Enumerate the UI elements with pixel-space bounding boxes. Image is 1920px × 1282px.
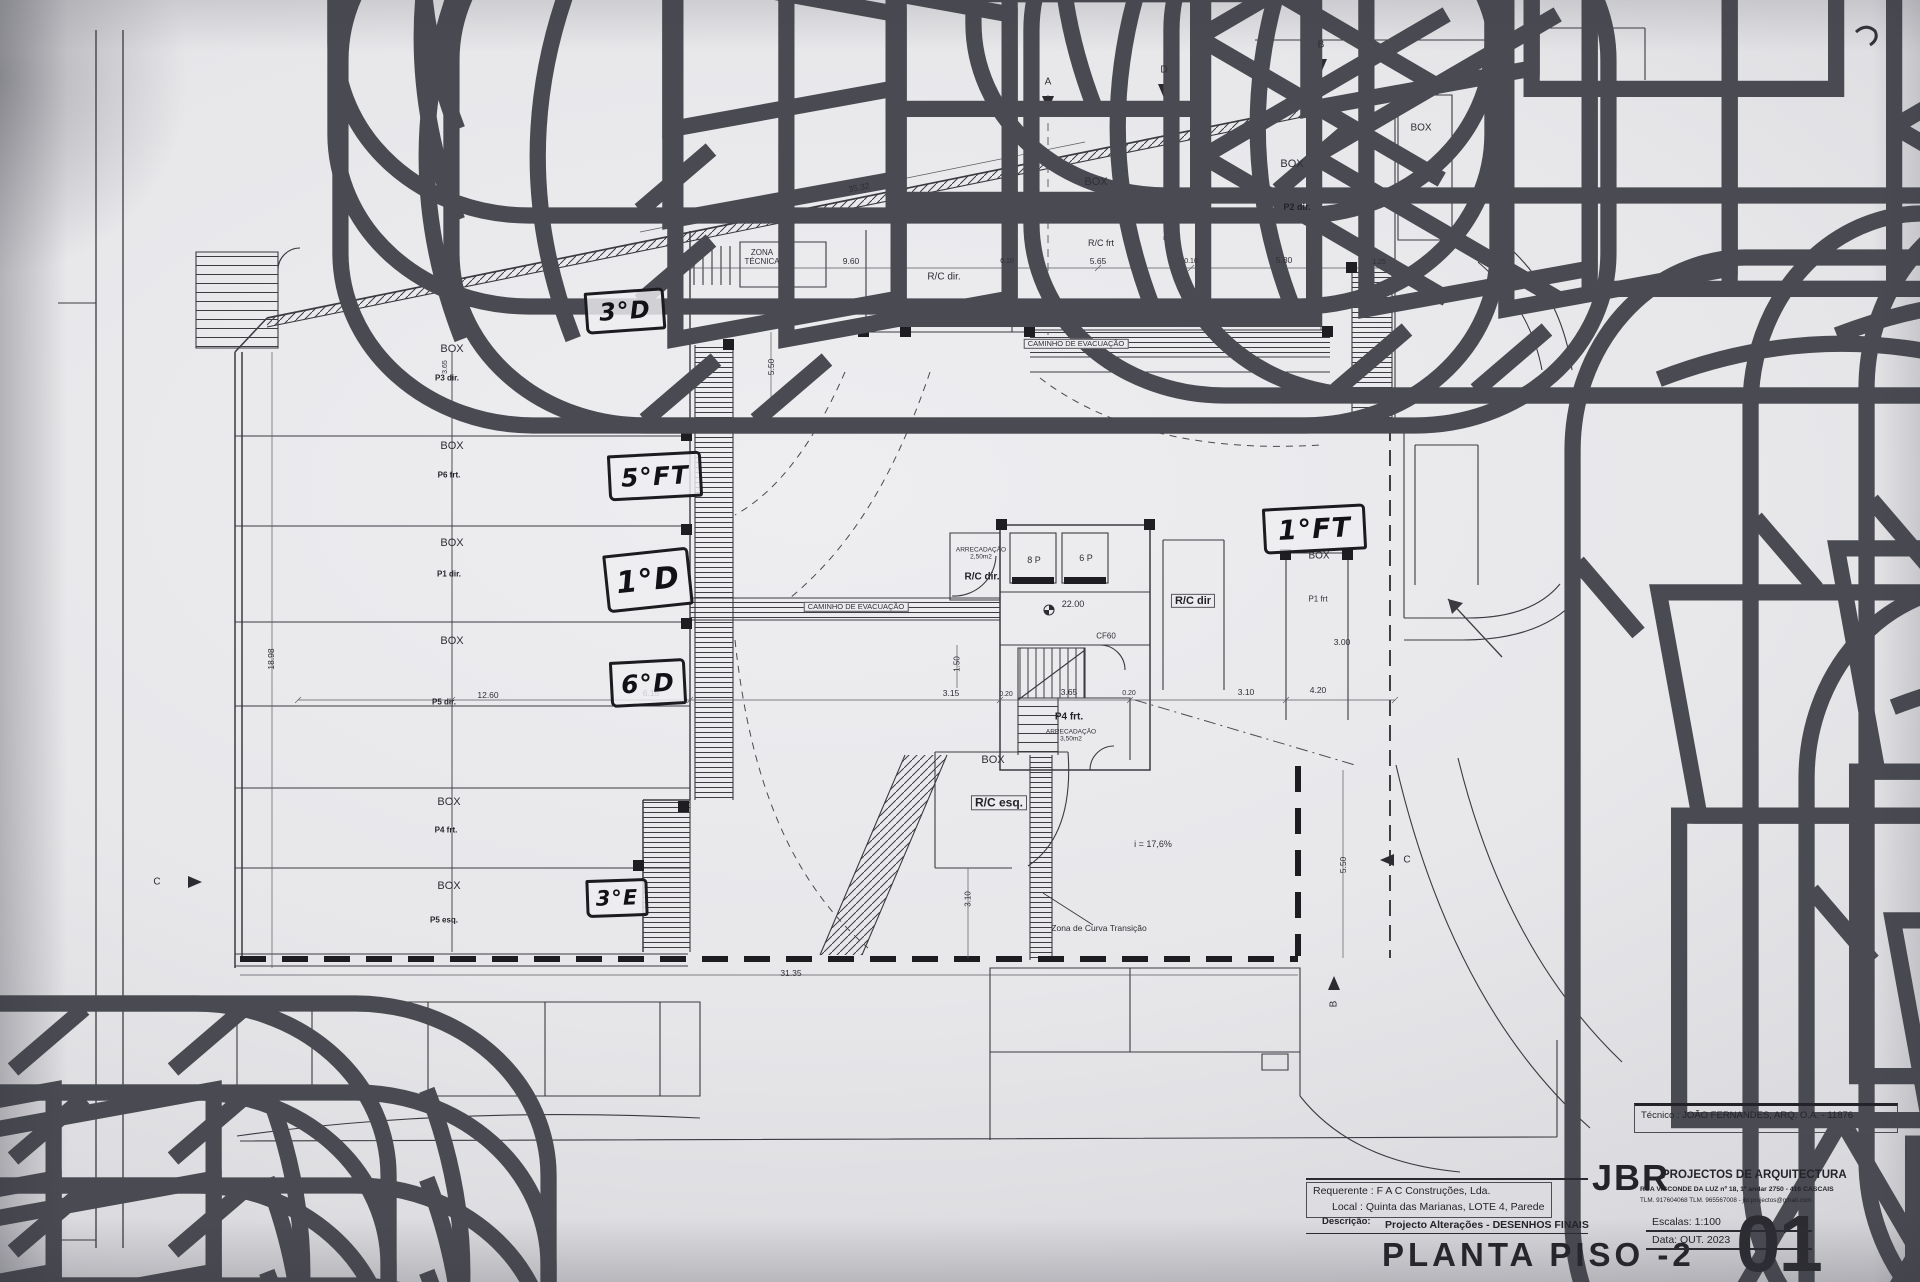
dim-label: 35.32 xyxy=(848,181,871,194)
escala-row: Escalas: 1:100 xyxy=(1652,1216,1721,1228)
level-label: 22.00 xyxy=(1062,599,1085,609)
lift-label: 6 P xyxy=(1079,553,1093,563)
rc-dir-top-label: R/C dir. xyxy=(927,271,960,282)
dim-label: 4.20 xyxy=(1310,686,1327,696)
dim-label: 3.10 xyxy=(1238,688,1255,698)
section-marker: D xyxy=(1160,64,1167,75)
dim-label: 1.25 xyxy=(1372,259,1386,267)
rc-dir-annex-label: R/C dir. xyxy=(964,571,999,582)
arrecadacao-label: ARRECADAÇÃO 2,50m2 xyxy=(956,547,1006,562)
stall-label: P4 frt. xyxy=(435,827,458,836)
dim-label: 3.65 xyxy=(442,360,450,374)
dim-label: 18.98 xyxy=(267,648,277,669)
arrecadacao-label: ARRECADAÇÃO 3,50m2 xyxy=(1046,729,1096,744)
dim-label: 5.50 xyxy=(1339,857,1349,874)
firm-name: PROJECTOS DE ARQUITECTURA xyxy=(1662,1169,1847,1181)
stall-label: P6 frt. xyxy=(438,472,461,481)
drawing-title: PLANTA PISO -2 xyxy=(1382,1236,1695,1274)
descricao-label: Descrição: xyxy=(1322,1216,1371,1227)
sheet-number: 01 xyxy=(1736,1198,1821,1282)
scanned-floor-plan-photo: ZONA TÉCNICACAMINHO DE EVACUAÇÃOCAMINHO … xyxy=(0,0,1920,1282)
stall-label: P3 dir. xyxy=(435,375,459,384)
local-row: Local : Quinta das Marianas, LOTE 4, Par… xyxy=(1332,1201,1544,1213)
box-label: BOX xyxy=(440,440,463,452)
stall-label: P5 esq. xyxy=(430,917,458,926)
descricao-value: Projecto Alterações - DESENHOS FINAIS xyxy=(1385,1219,1589,1231)
door-label: CF60 xyxy=(1096,633,1116,642)
section-marker: C xyxy=(153,876,160,887)
zona-tecnica-label: ZONA TÉCNICA xyxy=(744,249,779,267)
dim-label: 9.60 xyxy=(843,257,860,267)
lift-label: 8 P xyxy=(1027,555,1041,565)
dim-label: 0.20 xyxy=(999,691,1013,699)
dim-label: 0.10 xyxy=(1184,258,1198,266)
dim-label: 1.50 xyxy=(954,656,963,672)
stall-label: P4 frt. xyxy=(1055,711,1083,722)
section-marker: B xyxy=(1318,39,1325,50)
box-label: BOX xyxy=(440,537,463,549)
divider xyxy=(1306,1178,1588,1180)
box-label: BOX xyxy=(440,635,463,647)
divider xyxy=(1306,1233,1588,1234)
dim-label: 31.35 xyxy=(780,969,801,979)
box-label: BOX xyxy=(1084,176,1107,188)
box-label: BOX xyxy=(1410,122,1431,133)
dim-label: 0.20 xyxy=(1122,690,1136,698)
zona-curva-label: Zona de Curva Transição xyxy=(1051,924,1146,934)
box-label: BOX xyxy=(437,880,460,892)
caminho-evacuacao-label: CAMINHO DE EVACUAÇÃO xyxy=(804,602,909,612)
dim-label: 3.10 xyxy=(965,891,974,907)
slope-label: i = 17,6% xyxy=(1134,839,1172,849)
caminho-evacuacao-label: CAMINHO DE EVACUAÇÃO xyxy=(1024,339,1129,349)
dim-label: 0.10 xyxy=(1000,258,1014,266)
dim-label: 3.15 xyxy=(943,689,960,699)
dim-label: 5.65 xyxy=(1090,257,1107,267)
dim-label: 5.80 xyxy=(1276,256,1293,266)
section-marker: A xyxy=(1045,76,1052,87)
box-label: BOX xyxy=(981,754,1004,766)
section-marker: B xyxy=(1328,1001,1339,1008)
stall-label: P1 dir. xyxy=(437,571,461,580)
stall-label: P5 dir. xyxy=(432,699,456,708)
note-1ft: 1°FT xyxy=(1261,503,1366,554)
dim-label: 3.00 xyxy=(1334,638,1351,648)
note-1d: 1°D xyxy=(602,547,694,614)
plan-annotations: ZONA TÉCNICACAMINHO DE EVACUAÇÃOCAMINHO … xyxy=(0,0,1920,1282)
rc-dir-mid-label: R/C dir xyxy=(1171,594,1215,608)
stall-label: P2 dir. xyxy=(1283,202,1310,212)
rc-esq-label: R/C esq. xyxy=(971,795,1027,810)
rc-frt-label: R/C frt xyxy=(1088,238,1114,248)
stall-label: P1 frt xyxy=(1308,596,1327,605)
note-3d: 3°D xyxy=(584,287,667,334)
dim-label: 12.60 xyxy=(477,691,498,701)
dim-label: 3.65 xyxy=(1061,688,1078,698)
box-label: BOX xyxy=(440,343,463,355)
firm-address: RUA VISCONDE DA LUZ nº 18, 1º andar 2750… xyxy=(1640,1186,1834,1193)
note-6d: 6°D xyxy=(609,658,687,708)
dim-label: 5.50 xyxy=(767,359,777,376)
box-label: BOX xyxy=(437,796,460,808)
box-label: BOX xyxy=(1280,158,1303,170)
data-row: Data: OUT. 2023 xyxy=(1652,1234,1730,1246)
section-marker: C xyxy=(1403,854,1410,865)
note-5ft: 5°FT xyxy=(607,451,703,502)
requerente-row: Requerente : F A C Construções, Lda. xyxy=(1313,1185,1490,1197)
note-3e: 3°E xyxy=(585,878,648,918)
tecnico-row: Técnico : JOÃO FERNANDES, ARQ. O.A. - 11… xyxy=(1641,1110,1853,1121)
